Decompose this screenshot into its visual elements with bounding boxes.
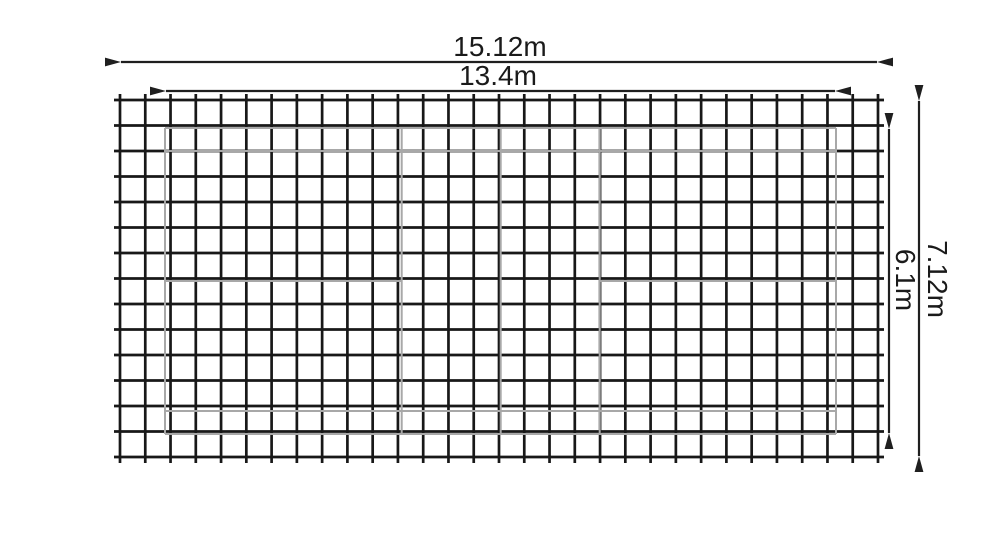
mesh-court-diagram: 15.12m 13.4m 7.12m 6.1m <box>0 0 1000 560</box>
mesh-grid <box>114 94 884 463</box>
dimension-outer-height: 7.12m <box>919 101 953 456</box>
inner-height-label: 6.1m <box>890 249 921 311</box>
inner-width-label: 13.4m <box>459 60 537 91</box>
outer-width-label: 15.12m <box>453 31 546 62</box>
dimension-inner-height: 6.1m <box>889 129 921 433</box>
dimension-outer-width: 15.12m <box>121 31 877 62</box>
dimension-inner-width: 13.4m <box>166 60 835 91</box>
outer-height-label: 7.12m <box>922 240 953 318</box>
diagram-canvas: 15.12m 13.4m 7.12m 6.1m <box>0 0 1000 560</box>
court-markings <box>165 128 836 434</box>
